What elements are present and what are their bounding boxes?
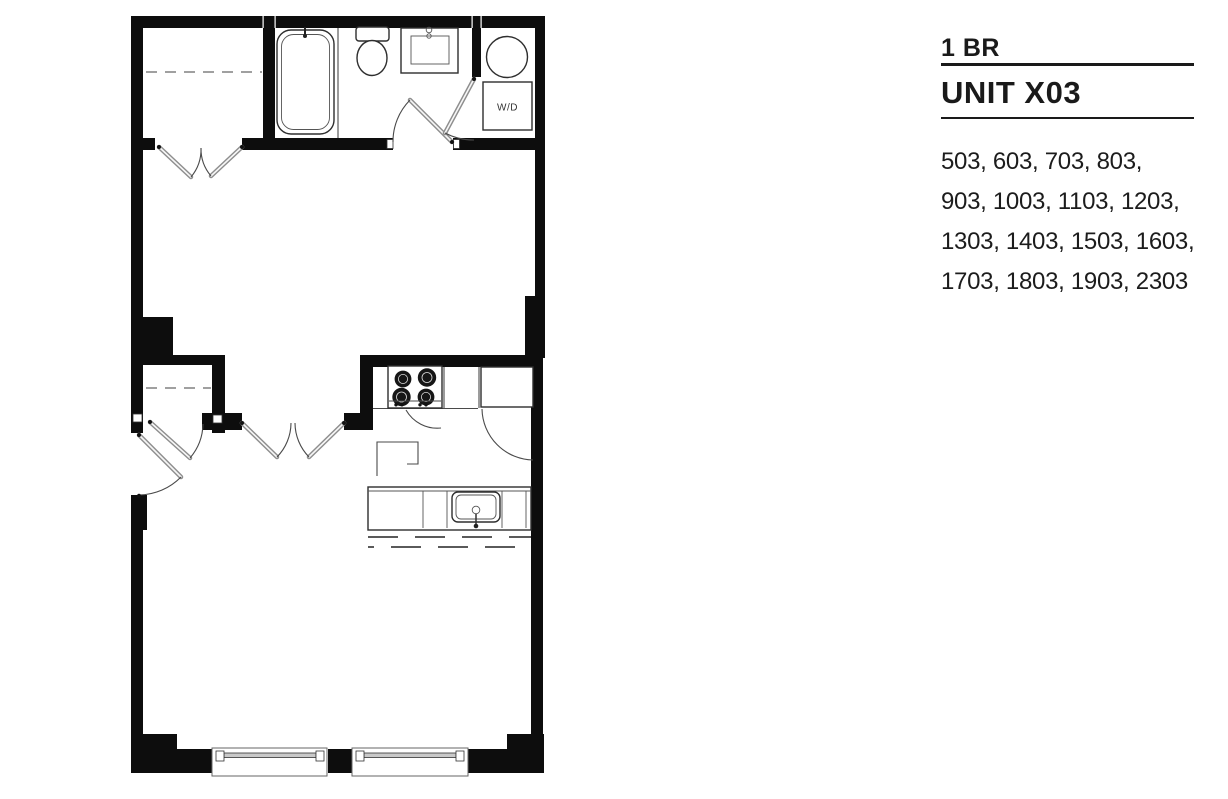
unit-numbers-line: 903, 1003, 1103, 1203, — [941, 182, 1211, 222]
stove-knob — [394, 403, 397, 406]
wall — [468, 749, 507, 773]
washer-drum-icon — [487, 37, 528, 78]
wall — [360, 355, 373, 427]
peninsula-counter — [377, 442, 418, 476]
bathtub-faucet-dot — [303, 34, 307, 38]
unit-info-panel: 1 BR UNIT X03 503, 603, 703, 803, 903, 1… — [941, 36, 1211, 302]
refrigerator-box — [481, 367, 533, 407]
bathtub — [277, 27, 338, 138]
island-outline — [368, 487, 531, 530]
vanity-sink — [401, 27, 458, 73]
divider — [941, 117, 1194, 120]
window-1 — [212, 748, 327, 776]
wall-joint — [481, 16, 482, 28]
unit-numbers-line: 503, 603, 703, 803, — [941, 142, 1211, 182]
page: { "panel": { "bedroom_type": "1 BR", "un… — [0, 0, 1228, 794]
window-sill — [352, 748, 468, 776]
wall-mullion — [328, 749, 352, 773]
burner-icon — [418, 389, 435, 406]
wall — [131, 16, 545, 28]
burner-icon — [418, 368, 436, 386]
wall-joint — [275, 16, 276, 28]
unit-numbers-line: 1703, 1803, 1903, 2303 — [941, 262, 1211, 302]
unit-name-heading: UNIT X03 — [941, 76, 1211, 110]
window-2 — [352, 748, 468, 776]
oven-door-arc — [406, 410, 441, 428]
floor-plan-svg: W/D — [0, 0, 660, 794]
unit-numbers-line: 1303, 1403, 1503, 1603, — [941, 222, 1211, 262]
wall — [142, 138, 155, 150]
refrigerator-door-arc — [482, 409, 533, 460]
stove-knob — [400, 403, 403, 406]
bedroom-type-heading: 1 BR — [941, 36, 1211, 61]
window-jamb — [356, 751, 364, 761]
wall — [131, 495, 147, 530]
wall-joint — [472, 16, 473, 28]
wall — [535, 16, 545, 296]
toilet-bowl — [357, 41, 387, 76]
stove-knob — [424, 403, 427, 406]
bedroom-french-doors — [240, 421, 346, 457]
wall — [275, 138, 393, 150]
wall-column — [525, 296, 545, 358]
burner-icon — [395, 371, 412, 388]
door-jamb — [213, 415, 222, 423]
wall — [481, 138, 535, 150]
washer-dryer-label: W/D — [497, 103, 518, 114]
sink-faucet-base — [474, 524, 479, 529]
window-jamb — [456, 751, 464, 761]
door-jamb — [387, 140, 393, 149]
closet-double-door — [157, 145, 244, 177]
unit-numbers: 503, 603, 703, 803, 903, 1003, 1103, 120… — [941, 142, 1211, 302]
stove — [388, 366, 442, 428]
stove-knob — [418, 403, 421, 406]
wall — [263, 27, 275, 150]
wall — [531, 358, 543, 734]
wall — [131, 530, 143, 734]
vanity-counter — [401, 28, 458, 73]
wall-corner — [507, 734, 544, 773]
refrigerator — [481, 367, 533, 460]
divider — [941, 63, 1194, 66]
window-glass — [364, 753, 456, 758]
bathroom-door — [393, 100, 454, 144]
wall-joint — [263, 16, 264, 28]
window-jamb — [216, 751, 224, 761]
wall — [131, 16, 143, 317]
wall — [142, 355, 225, 365]
wall — [472, 16, 481, 77]
window-sill — [212, 748, 327, 776]
washer-dryer: W/D — [483, 37, 532, 131]
wall — [177, 749, 213, 773]
wall-corner — [131, 734, 177, 773]
door-jamb — [454, 140, 460, 149]
wall — [360, 355, 531, 367]
laundry-closet-door — [445, 77, 476, 140]
bathtub-outline — [277, 30, 334, 134]
wall — [131, 365, 143, 433]
kitchen-island — [368, 487, 531, 547]
toilet — [356, 27, 389, 76]
door-jamb — [133, 414, 142, 422]
window-jamb — [316, 751, 324, 761]
window-glass — [224, 753, 316, 758]
floor-plan: W/D — [0, 0, 660, 794]
wall — [242, 138, 275, 150]
toilet-tank — [356, 27, 389, 41]
